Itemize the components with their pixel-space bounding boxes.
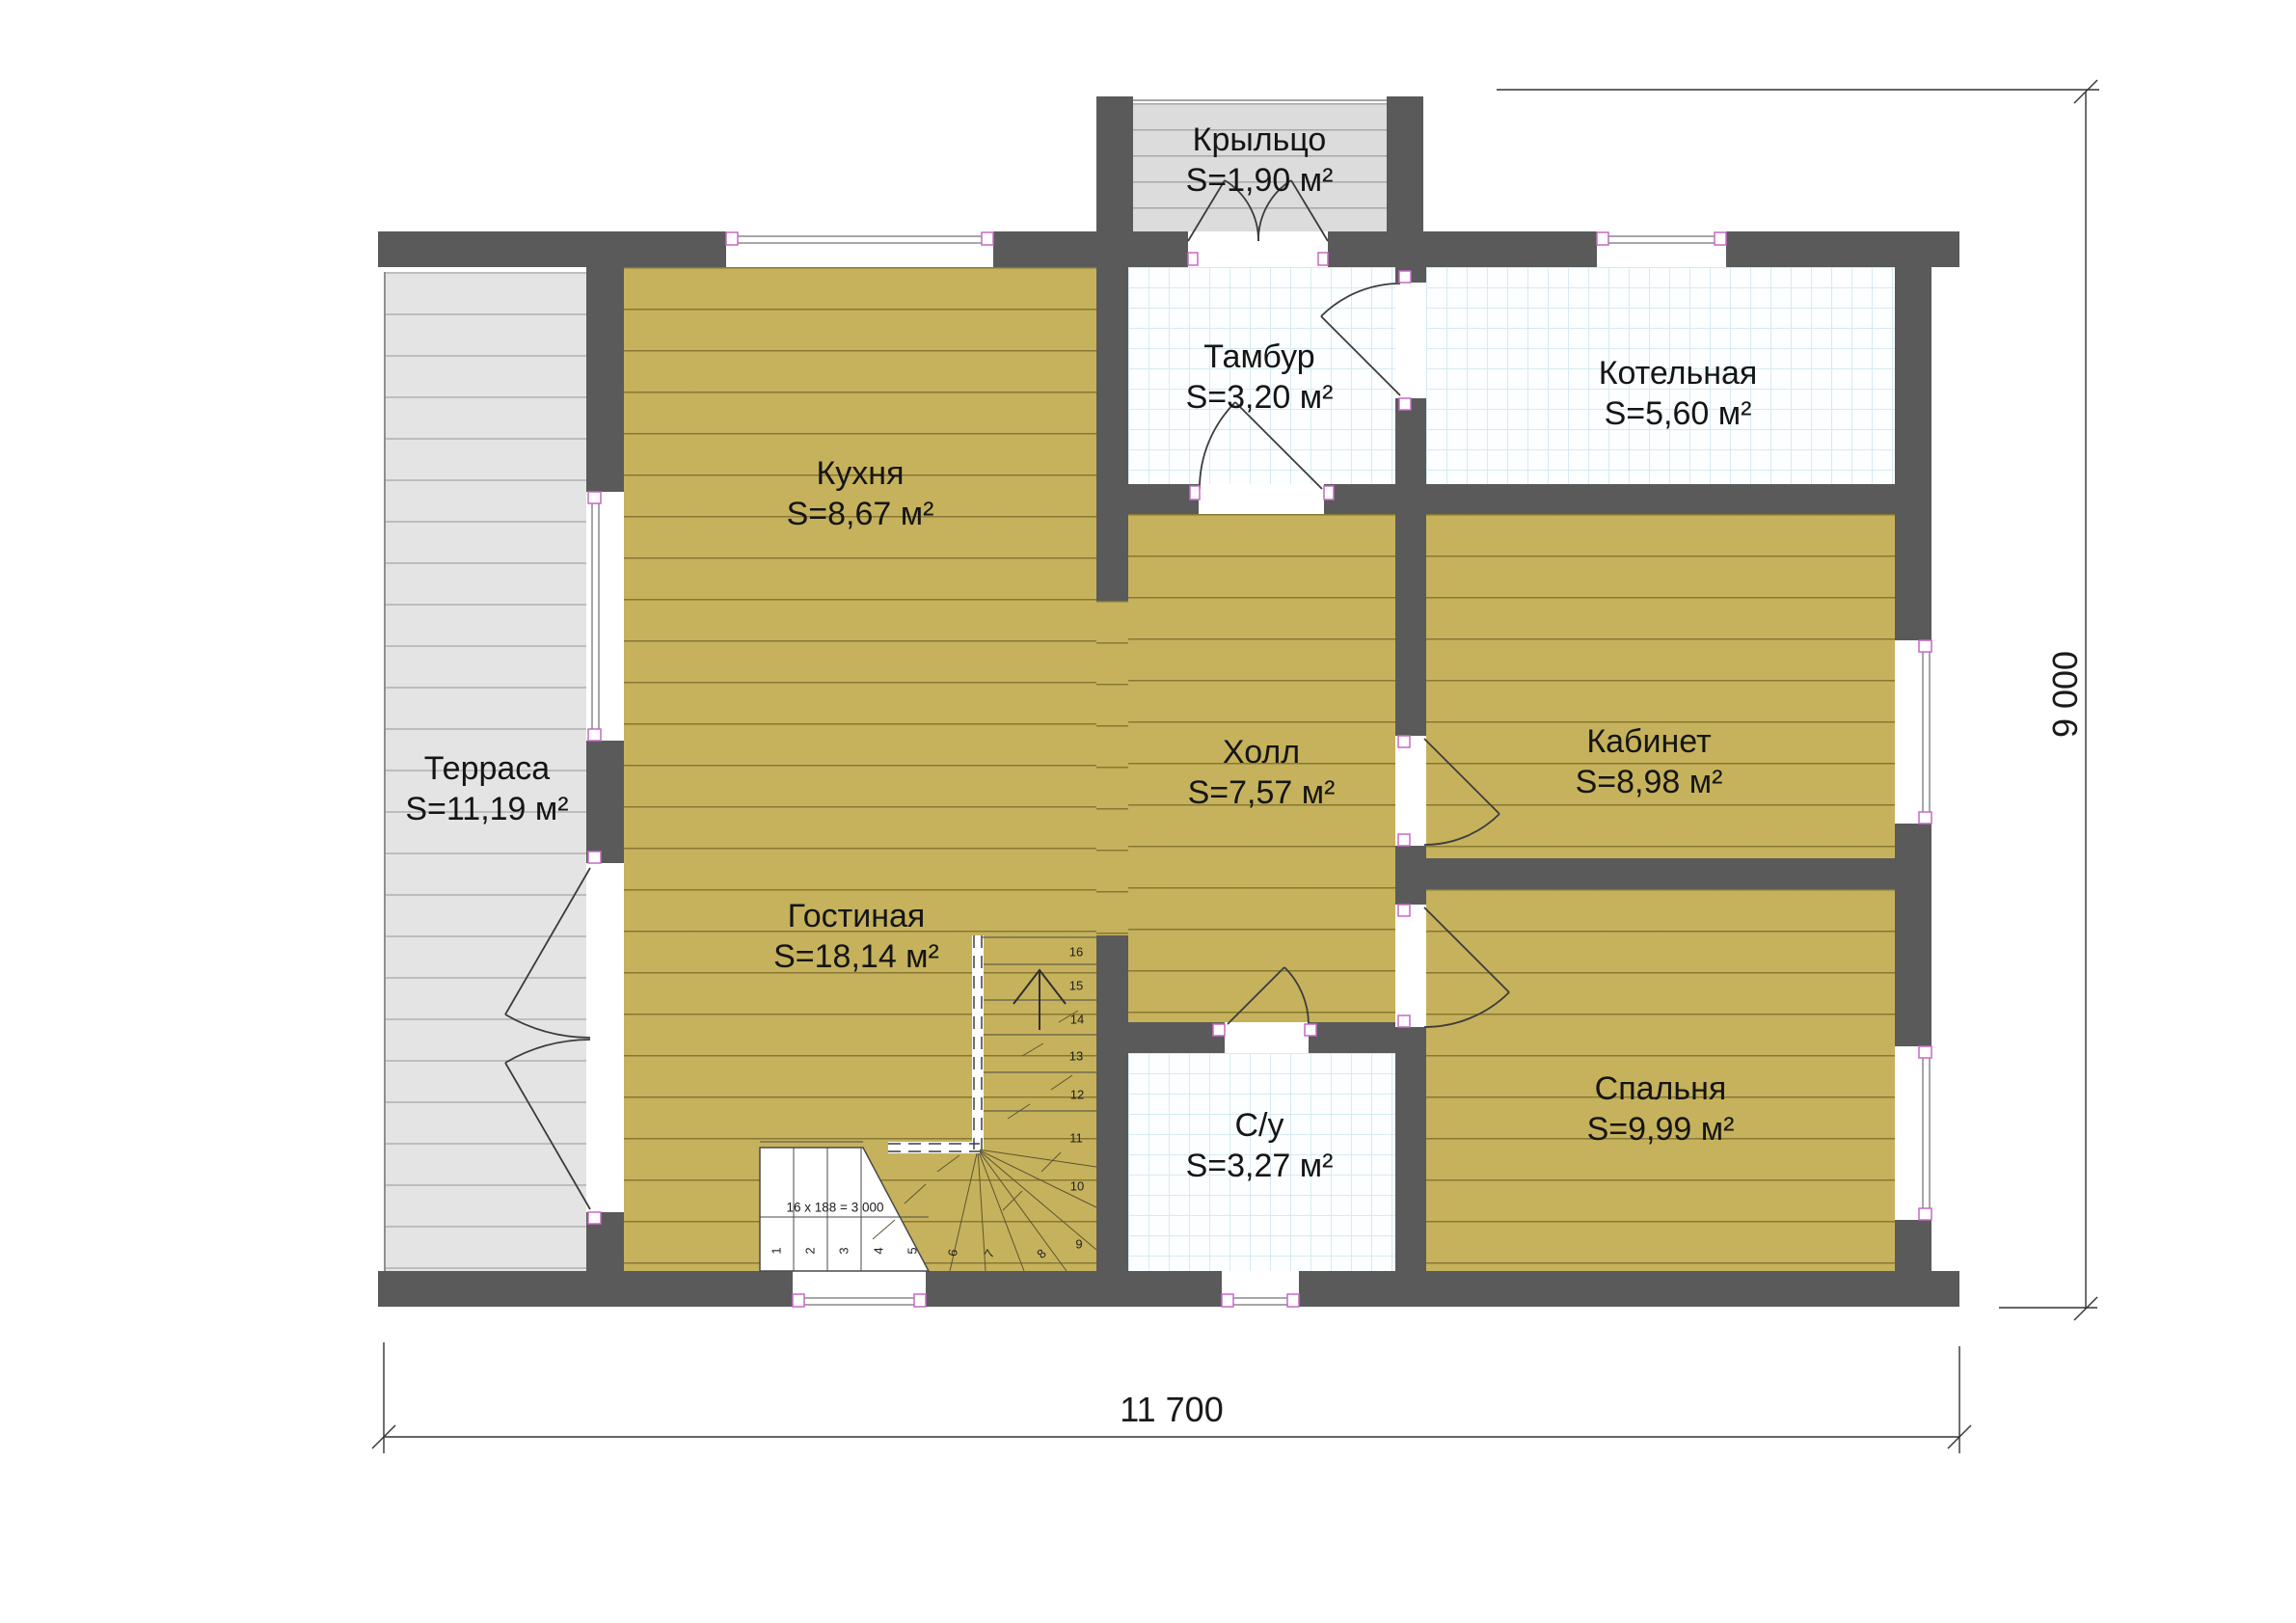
dimension-height-label: 9 000 — [2045, 651, 2086, 738]
room-label-office: Кабинет S=8,98 м² — [1576, 721, 1723, 802]
stair-tread-number-2: 2 — [803, 1247, 818, 1254]
wall-right-3 — [1895, 1220, 1931, 1271]
room-label-living: Гостиная S=18,14 м² — [773, 896, 939, 977]
room-label-bedroom: Спальня S=9,99 м² — [1587, 1068, 1735, 1150]
stair-tread-number-4: 4 — [872, 1247, 886, 1254]
room-area: S=1,90 м² — [1186, 160, 1334, 201]
wall-office-bedroom — [1426, 858, 1895, 889]
wall-boiler-bottom — [1426, 484, 1895, 514]
room-label-boiler: Котельная S=5,60 м² — [1599, 353, 1758, 434]
window-bedroom-right — [1923, 1058, 1930, 1208]
wall-center-1 — [1395, 398, 1426, 736]
window-living-bottom — [804, 1298, 914, 1305]
room-label-kitchen: Кухня S=8,67 м² — [787, 453, 934, 534]
window-boiler-top — [1608, 236, 1715, 243]
porch-pier-right — [1387, 96, 1423, 231]
wall-terrace-1 — [586, 267, 624, 492]
office-floor — [1426, 514, 1895, 858]
stair-tread-number-13: 13 — [1069, 1049, 1083, 1064]
room-area: S=7,57 м² — [1188, 772, 1336, 813]
window-office-right — [1923, 652, 1930, 812]
room-name: Холл — [1188, 732, 1336, 772]
hall-passage-floor — [1096, 601, 1128, 935]
stair-tread-number-3: 3 — [837, 1247, 851, 1254]
room-area: S=8,98 м² — [1576, 762, 1723, 802]
wall-top-2 — [993, 231, 1188, 267]
room-area: S=9,99 м² — [1587, 1109, 1735, 1150]
stair-tread-number-10: 10 — [1070, 1179, 1084, 1194]
stair-tread-number-14: 14 — [1070, 1013, 1084, 1027]
room-name: С/у — [1186, 1105, 1334, 1146]
wall-top-1 — [378, 231, 726, 267]
room-label-porch: Крыльцо S=1,90 м² — [1186, 120, 1334, 201]
wall-bathroom-top-1 — [1096, 1022, 1225, 1053]
wall-center-3 — [1395, 1027, 1426, 1271]
stair-annotation: 16 x 188 = 3 000 — [787, 1201, 884, 1215]
wall-center-2 — [1395, 846, 1426, 905]
room-area: S=3,20 м² — [1186, 377, 1334, 418]
floor-plan: Кухня S=8,67 м² Терраса S=11,19 м² Гости… — [0, 0, 2296, 1623]
stair-tread-number-11: 11 — [1069, 1131, 1083, 1146]
stair-tread-number-5: 5 — [905, 1247, 920, 1254]
room-label-vestibule: Тамбур S=3,20 м² — [1186, 337, 1334, 418]
room-label-terrace: Терраса S=11,19 м² — [405, 748, 568, 829]
stair-tread-number-1: 1 — [770, 1247, 784, 1254]
stair-tread-number-16: 16 — [1069, 945, 1083, 960]
room-name: Тамбур — [1186, 337, 1334, 377]
stair-tread-number-12: 12 — [1070, 1088, 1084, 1102]
room-area: S=5,60 м² — [1599, 393, 1758, 434]
stair-tread-number-15: 15 — [1069, 979, 1083, 993]
room-area: S=8,67 м² — [787, 494, 934, 534]
wall-bottom-2 — [926, 1271, 1222, 1307]
room-name: Котельная — [1599, 353, 1758, 393]
room-label-hall: Холл S=7,57 м² — [1188, 732, 1336, 813]
wall-right-2 — [1895, 824, 1931, 1046]
wall-center-stub — [1395, 267, 1426, 283]
wall-kitchen-hall — [1096, 267, 1128, 601]
wall-bathroom-top-2 — [1309, 1022, 1395, 1053]
wall-vestibule-bottom-2 — [1324, 484, 1395, 514]
kitchen-living-floor — [624, 267, 1096, 1271]
wall-vestibule-bottom-1 — [1096, 484, 1199, 514]
room-area: S=11,19 м² — [405, 789, 568, 829]
room-area: S=18,14 м² — [773, 936, 939, 977]
wall-bottom-3 — [1299, 1271, 1959, 1307]
room-name: Гостиная — [773, 896, 939, 936]
room-label-bathroom: С/у S=3,27 м² — [1186, 1105, 1334, 1186]
wall-terrace-3 — [586, 1212, 624, 1271]
room-name: Кухня — [787, 453, 934, 494]
window-terrace-living — [592, 503, 599, 729]
room-area: S=3,27 м² — [1186, 1146, 1334, 1186]
room-name: Терраса — [405, 748, 568, 789]
porch-pier-left — [1096, 96, 1133, 231]
wall-top-3 — [1328, 231, 1597, 267]
room-name: Спальня — [1587, 1068, 1735, 1109]
wall-terrace-2 — [586, 741, 624, 863]
dimension-width-label: 11 700 — [1120, 1390, 1223, 1430]
room-name: Кабинет — [1576, 721, 1723, 762]
wall-top-4 — [1726, 231, 1959, 267]
stair-tread-number-9: 9 — [1075, 1237, 1082, 1252]
wall-stair — [1096, 935, 1128, 1271]
window-kitchen-top — [738, 236, 982, 243]
wall-bottom-1 — [378, 1271, 793, 1307]
room-name: Крыльцо — [1186, 120, 1334, 160]
wall-right-1 — [1895, 267, 1931, 640]
window-bathroom-bottom — [1233, 1298, 1287, 1305]
